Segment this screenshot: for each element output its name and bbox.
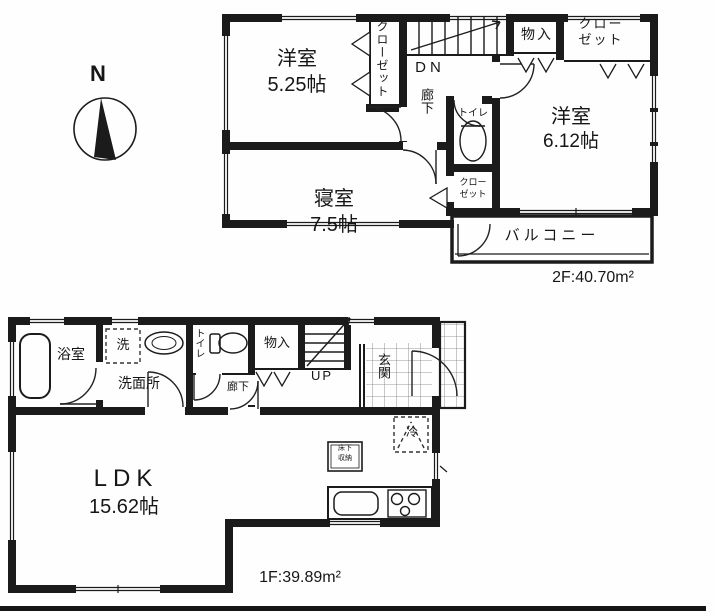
hallway-1f-label: 廊下 <box>227 381 249 393</box>
toilet-1f-label: トイレ <box>193 328 203 358</box>
stairs-down-label: DN <box>415 60 445 77</box>
floor-plan-page: N 洋室 5.25帖 クローゼット DN 廊下 トイレ 物入 クロー ゼット 洋… <box>0 0 717 613</box>
floor2-interior-walls <box>222 14 564 216</box>
bathtub-icon <box>20 334 50 398</box>
north-compass-icon <box>74 98 136 160</box>
closet-right-label-line1: クロー <box>578 17 623 31</box>
room-label-bedroom-name: 寝室 <box>314 188 354 210</box>
room-label-ldk-name: LDK <box>94 466 159 492</box>
room-label-western1-name: 洋室 <box>277 48 317 70</box>
storage-2f-label: 物入 <box>521 27 553 42</box>
storage-1f-label: 物入 <box>264 336 290 350</box>
closet-small-label-line1: クロー <box>459 178 486 188</box>
room-label-bedroom-size: 7.5帖 <box>310 214 358 236</box>
closet-small-label-line2: ゼット <box>459 190 486 200</box>
stairs-up-label: UP <box>311 369 333 383</box>
room-label-western2-size: 6.12帖 <box>543 132 599 153</box>
compass-north-label: N <box>90 62 106 86</box>
toilet-2f-label: トイレ <box>458 108 488 119</box>
floor2-area-label: 2F:40.70m² <box>552 269 634 287</box>
storage-door-marks <box>256 372 290 386</box>
balcony-label: バルコニー <box>505 228 600 245</box>
hallway-2f-label: 廊下 <box>420 88 433 114</box>
room-label-ldk-size: 15.62帖 <box>89 496 159 518</box>
stairs-up-icon <box>305 318 350 366</box>
fridge-label: 冷 <box>406 426 418 439</box>
floor1-area-label: 1F:39.89m² <box>259 569 341 587</box>
room-label-western2-name: 洋室 <box>551 106 591 128</box>
entrance-label: 玄関 <box>377 353 390 379</box>
toilet-icon <box>210 333 247 353</box>
sink-icon <box>145 332 183 354</box>
floor-plan-drawing <box>0 0 717 613</box>
toilet-icon <box>460 121 486 161</box>
bath-label: 浴室 <box>57 347 85 362</box>
scan-edge-bar <box>0 606 706 611</box>
washroom-label: 洗面所 <box>118 376 160 391</box>
room-label-western1-size: 5.25帖 <box>268 74 327 96</box>
washer-label: 洗 <box>116 338 129 352</box>
underfloor-label-line2: 収納 <box>338 455 352 463</box>
closet-right-label-line2: ゼット <box>578 33 623 47</box>
underfloor-label-line1: 床下 <box>338 445 352 453</box>
room-label-closet-left: クローゼット <box>376 20 388 98</box>
